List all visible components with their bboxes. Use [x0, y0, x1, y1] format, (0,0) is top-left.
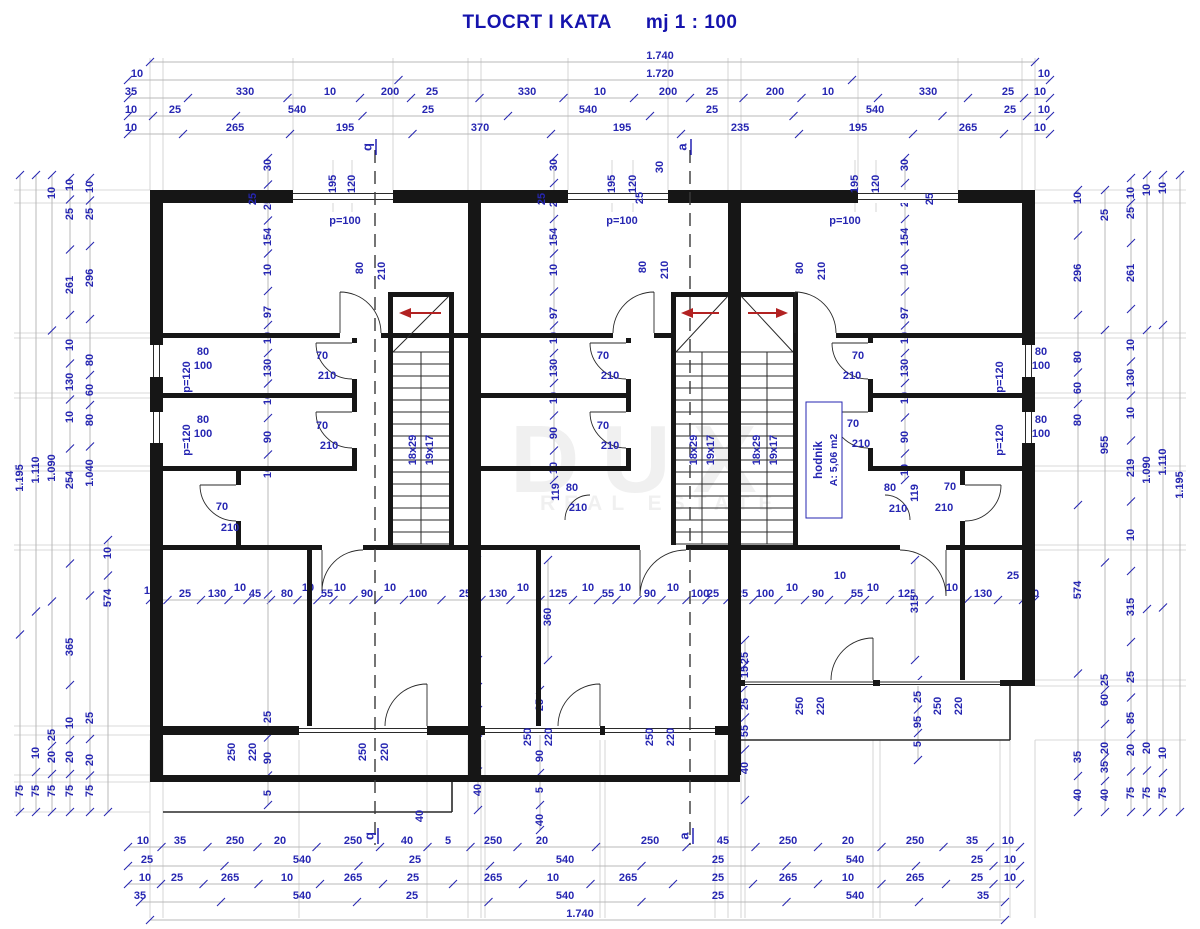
dim-label: 25	[407, 872, 419, 884]
dim-label: 25	[712, 890, 724, 902]
dim-label: 10	[1125, 407, 1137, 419]
dim-label: 25	[971, 854, 983, 866]
dim-label: 540	[288, 104, 306, 116]
dim-label: 55	[602, 588, 614, 600]
dim-label: 97	[262, 306, 274, 318]
v-dim-chain: 101.090252075	[46, 171, 58, 816]
dim-label: 10	[842, 872, 854, 884]
dim-label: 265	[221, 872, 239, 884]
room-name: hodnik	[813, 441, 825, 479]
dim-label: 10	[1157, 182, 1169, 194]
dim-label: 45	[249, 588, 261, 600]
dim-label: 60	[1072, 382, 1084, 394]
dim-label: 45	[717, 835, 729, 847]
dim-label: 25	[426, 86, 438, 98]
v-dim-chain: 101.0902075	[1141, 171, 1153, 816]
dim-label: 10	[46, 187, 58, 199]
h-dim-chain: 1.740	[146, 908, 1009, 924]
dim-label: 210	[935, 502, 953, 514]
dim-label: 250	[906, 835, 924, 847]
dim-label: 70	[597, 350, 609, 362]
dim-label: 90	[899, 431, 911, 443]
v-dim-chain: 10574	[102, 536, 114, 816]
h-dim-chain: 1025130104580105510901010025130101251055…	[144, 570, 1039, 604]
dim-label: 130	[64, 373, 76, 391]
dim-label: 25	[84, 208, 96, 220]
dim-label: 75	[1125, 787, 1137, 799]
h-dim-chain: 102526510265252651026525265102652510	[124, 872, 1024, 888]
dim-label: 95	[912, 716, 924, 728]
dim-label: 200	[381, 86, 399, 98]
dim-label: 20	[64, 751, 76, 763]
dim-label: 25	[971, 872, 983, 884]
dim-label: 210	[659, 261, 671, 279]
dim-label: 210	[221, 522, 239, 534]
dim-label: 250	[641, 835, 659, 847]
dim-label: 330	[236, 86, 254, 98]
dim-label: 20	[46, 751, 58, 763]
dim-label: 250	[932, 697, 944, 715]
dim-label: p=100	[829, 215, 861, 227]
dim-label: 10	[1004, 854, 1016, 866]
dim-label: a	[676, 832, 691, 840]
dim-label: 130	[262, 359, 274, 377]
dim-label: 100	[1032, 360, 1050, 372]
dim-label: 10	[867, 582, 879, 594]
dim-label: 70	[216, 501, 228, 513]
dim-label: 20	[842, 835, 854, 847]
dim-label: 195	[336, 122, 354, 134]
dim-label: 10	[1038, 68, 1050, 80]
dim-label: 10	[667, 582, 679, 594]
dim-label: 70	[316, 350, 328, 362]
v-dim-chain: 3025154109710130109010	[548, 154, 560, 484]
dim-label: 261	[1125, 264, 1137, 282]
dim-label: 19x17	[768, 435, 780, 466]
dim-label: 25	[924, 193, 936, 205]
dim-label: 261	[64, 276, 76, 294]
dim-label: 130	[548, 359, 560, 377]
dim-label: 40	[534, 814, 546, 826]
dim-label: 10	[281, 872, 293, 884]
dim-label: 10	[1034, 122, 1046, 134]
dim-label: 100	[1032, 428, 1050, 440]
dim-label: 100	[194, 360, 212, 372]
dim-label: 540	[846, 890, 864, 902]
dim-label: p=100	[606, 215, 638, 227]
dim-label: 315	[909, 595, 921, 613]
dim-label: 30	[548, 159, 560, 171]
dim-label: 130	[974, 588, 992, 600]
dim-label: 25	[46, 729, 58, 741]
dim-label: 210	[569, 502, 587, 514]
dim-label: 1.040	[84, 459, 96, 487]
dim-label: 210	[601, 440, 619, 452]
dim-label: 10	[1125, 187, 1137, 199]
dim-label: 100	[194, 428, 212, 440]
dim-label: 265	[484, 872, 502, 884]
dim-label: 40	[1099, 789, 1111, 801]
dim-label: 1.740	[646, 50, 674, 62]
dim-label: 75	[64, 785, 76, 797]
dim-label: 40	[401, 835, 413, 847]
dim-label: 195	[613, 122, 631, 134]
dim-label: 80	[1072, 351, 1084, 363]
dim-label: 210	[816, 262, 828, 280]
v-dim-chain: 3025154109710130109010	[899, 154, 911, 484]
dim-label: 80	[84, 354, 96, 366]
dim-label: 20	[84, 754, 96, 766]
dim-label: 130	[208, 588, 226, 600]
dim-label: 25	[179, 588, 191, 600]
dim-label: 1.720	[646, 68, 674, 80]
dim-label: 70	[852, 350, 864, 362]
dim-label: 55	[851, 588, 863, 600]
dim-label: 25	[141, 854, 153, 866]
dim-label: 10	[30, 747, 42, 759]
dim-label: 330	[518, 86, 536, 98]
dim-label: 18x29	[407, 435, 419, 466]
dim-label: 10	[1038, 104, 1050, 116]
dim-label: 250	[226, 743, 238, 761]
h-dim-chain: 1035250202504052502025045250202503510	[124, 835, 1024, 851]
dim-label: 1.110	[30, 457, 42, 484]
dim-label: 10	[324, 86, 336, 98]
dim-label: 25	[712, 854, 724, 866]
dim-label: 10	[64, 339, 76, 351]
dim-label: 25	[247, 193, 259, 205]
dim-label: 220	[379, 743, 391, 761]
dim-label: 220	[247, 743, 259, 761]
dim-label: 35	[174, 835, 186, 847]
h-dim-chain: 101.72010	[124, 68, 1054, 84]
dim-label: 25	[171, 872, 183, 884]
dim-label: 10	[234, 582, 246, 594]
dim-label: 75	[14, 785, 26, 797]
dim-label: 35	[977, 890, 989, 902]
dim-label: 220	[815, 697, 827, 715]
dim-label: 25	[712, 872, 724, 884]
dim-label: 10	[139, 872, 151, 884]
dim-label: 265	[959, 122, 977, 134]
dim-label: 574	[102, 588, 114, 607]
dim-label: 10	[786, 582, 798, 594]
dim-label: 219	[1125, 459, 1137, 477]
dim-label: 10	[1125, 529, 1137, 541]
dim-label: 90	[361, 588, 373, 600]
dim-label: 25	[536, 193, 548, 205]
dim-label: 20	[274, 835, 286, 847]
dim-label: 1.195	[14, 464, 26, 492]
dim-label: 200	[766, 86, 784, 98]
dim-label: 330	[919, 86, 937, 98]
dim-label: 80	[566, 482, 578, 494]
v-dim-chain: 1.195	[1174, 171, 1186, 816]
dim-label: 315	[1125, 598, 1137, 616]
dim-label: 210	[889, 503, 907, 515]
dim-label: 80	[354, 262, 366, 274]
h-dim-chain: 35540255402554035	[134, 890, 1009, 906]
dim-label: 540	[846, 854, 864, 866]
dim-label: 130	[1125, 369, 1137, 387]
dim-label: p=120	[181, 424, 193, 456]
dim-label: 80	[637, 261, 649, 273]
dim-label: 90	[812, 588, 824, 600]
dim-label: 25	[1007, 570, 1019, 582]
dim-label: 1.090	[1141, 456, 1153, 484]
dim-label: 250	[644, 728, 656, 746]
dim-label: 540	[556, 854, 574, 866]
dim-label: 70	[944, 481, 956, 493]
dim-label: 220	[953, 697, 965, 715]
dim-label: 35	[966, 835, 978, 847]
dim-label: 10	[334, 582, 346, 594]
dim-label: 10	[64, 179, 76, 191]
dim-label: 90	[262, 431, 274, 443]
dim-label: 210	[852, 438, 870, 450]
dim-label: 119	[909, 484, 921, 502]
dim-label: 195	[849, 175, 861, 193]
dim-label: 20	[1099, 742, 1111, 754]
floor-plan-drawing: DUX REAL ESTATE 1.740101.720103533010200…	[0, 0, 1200, 929]
dim-label: 120	[627, 175, 639, 193]
h-dim-chain: 3533010200253301020025200103302510	[124, 86, 1054, 102]
dim-label: 10	[547, 872, 559, 884]
dim-label: 1.195	[1174, 471, 1186, 499]
dim-label: 25	[1004, 104, 1016, 116]
dim-label: 90	[548, 427, 560, 439]
dim-label: 10	[1141, 184, 1153, 196]
dim-label: 10	[1157, 747, 1169, 759]
dim-label: 80	[197, 346, 209, 358]
dim-label: 210	[318, 370, 336, 382]
dim-label: 20	[1141, 742, 1153, 754]
dim-label: 125	[549, 588, 567, 600]
dim-label: 5	[262, 790, 274, 796]
v-dim-chain: 25955	[912, 676, 924, 764]
dim-label: 119	[550, 483, 562, 501]
dim-label: 254	[64, 470, 76, 489]
dim-label: 360	[542, 608, 554, 626]
dim-label: 97	[899, 307, 911, 319]
dim-label: 210	[601, 370, 619, 382]
v-dim-chain: 102968060805743540	[1072, 186, 1084, 816]
dim-label: 10	[1072, 192, 1084, 204]
dim-label: 10	[64, 717, 76, 729]
dim-label: 540	[293, 854, 311, 866]
dim-label: 10	[594, 86, 606, 98]
room-label-hodnik: hodnik A: 5,06 m2	[806, 402, 842, 518]
dim-label: 10	[517, 582, 529, 594]
dim-label: 10	[548, 264, 560, 276]
room-area: A: 5,06 m2	[828, 434, 840, 487]
dim-label: 540	[579, 104, 597, 116]
dim-label: 25	[169, 104, 181, 116]
v-dim-chain: 315	[909, 556, 921, 664]
dim-label: 5	[912, 741, 924, 747]
dim-label: 220	[543, 728, 555, 746]
dim-label: 10	[619, 582, 631, 594]
v-dim-chain: 302515410971013010901025905	[262, 154, 274, 809]
dim-label: 10	[946, 582, 958, 594]
h-dim-chain: 1026519537019523519526510	[124, 122, 1054, 138]
dim-label: 90	[262, 752, 274, 764]
dim-label: 250	[344, 835, 362, 847]
dim-label: 19x17	[705, 435, 717, 466]
dim-label: 195	[606, 175, 618, 193]
dim-label: 540	[556, 890, 574, 902]
v-dim-chain: 102526110130102191031525852075	[1125, 174, 1137, 816]
dim-label: 250	[522, 728, 534, 746]
dim-label: 365	[64, 638, 76, 656]
dim-label: 97	[548, 307, 560, 319]
dim-label: 540	[293, 890, 311, 902]
dim-label: 265	[906, 872, 924, 884]
dim-label: 296	[1072, 264, 1084, 282]
dim-label: 10	[582, 582, 594, 594]
dim-label: 120	[870, 175, 882, 193]
dim-label: 25	[1002, 86, 1014, 98]
dim-label: 574	[1072, 580, 1084, 599]
v-dim-chain: 10252611013010254365102075	[64, 174, 76, 816]
dim-label: 18x29	[751, 435, 763, 466]
dim-label: 55	[321, 588, 333, 600]
h-dim-chain: 102554025540255402510	[124, 104, 1054, 120]
h-dim-chain: 2554025540255402510	[124, 854, 1024, 870]
dim-label: 35	[125, 86, 137, 98]
dim-label: 70	[316, 420, 328, 432]
dim-label: 75	[30, 785, 42, 797]
dim-label: 35	[134, 890, 146, 902]
dim-label: 75	[1157, 787, 1169, 799]
dim-label: 10	[1034, 86, 1046, 98]
dim-label: 25	[1099, 674, 1111, 686]
dim-label: 80	[84, 414, 96, 426]
dim-label: 70	[847, 418, 859, 430]
dim-label: 1.090	[46, 454, 58, 482]
dim-label: 154	[548, 227, 560, 246]
dim-label: 25	[84, 712, 96, 724]
dim-label: p=120	[994, 424, 1006, 456]
dim-label: 154	[899, 227, 911, 246]
dim-label: 250	[794, 697, 806, 715]
dim-label: 120	[346, 175, 358, 193]
dim-label: 130	[899, 359, 911, 377]
dim-label: 250	[357, 743, 369, 761]
dim-label: 10	[102, 547, 114, 559]
dim-label: 25	[64, 208, 76, 220]
h-dim-chain: 1.740	[146, 50, 1039, 66]
dim-label: 90	[534, 750, 546, 762]
dim-label: 210	[843, 370, 861, 382]
v-dim-chain: 360	[542, 556, 554, 664]
dim-label: 1.110	[1157, 449, 1169, 476]
dim-label: 10	[899, 264, 911, 276]
dim-label: 370	[471, 122, 489, 134]
v-dim-chain: 1.1101075	[30, 171, 42, 816]
dim-label: 195	[849, 122, 867, 134]
dim-label: 80	[1072, 414, 1084, 426]
dim-label: 60	[1099, 694, 1111, 706]
dim-label: 210	[376, 262, 388, 280]
dim-label: 10	[1004, 872, 1016, 884]
dim-label: 265	[779, 872, 797, 884]
dim-label: 25	[409, 854, 421, 866]
dim-label: 250	[226, 835, 244, 847]
dim-label: 265	[344, 872, 362, 884]
dim-label: 220	[665, 728, 677, 746]
dim-label: 10	[137, 835, 149, 847]
dim-label: 35	[1072, 751, 1084, 763]
dim-label: 10	[1125, 339, 1137, 351]
dim-label: 75	[46, 785, 58, 797]
dim-label: 40	[472, 784, 484, 796]
dim-label: 10	[131, 68, 143, 80]
dim-label: a	[674, 143, 689, 151]
dim-label: 30	[262, 159, 274, 171]
dim-label: 955	[1099, 436, 1111, 454]
dim-label: 30	[654, 161, 666, 173]
dim-label: 10	[822, 86, 834, 98]
dim-label: 100	[409, 588, 427, 600]
dim-label: 40	[1072, 789, 1084, 801]
dim-label: 20	[536, 835, 548, 847]
dim-label: 10	[84, 181, 96, 193]
v-dim-chain: 259552560203540	[1099, 186, 1111, 816]
dim-label: 10	[834, 570, 846, 582]
dim-label: 265	[619, 872, 637, 884]
dim-label: 540	[866, 104, 884, 116]
dim-label: 10	[1002, 835, 1014, 847]
dim-label: 195	[327, 175, 339, 193]
dim-label: 35	[1099, 761, 1111, 773]
dim-label: 10	[64, 411, 76, 423]
dim-label: 25	[1125, 207, 1137, 219]
dim-label: 75	[1141, 787, 1153, 799]
dim-label: 85	[1125, 712, 1137, 724]
dim-label: 25	[262, 711, 274, 723]
dim-label: 10	[384, 582, 396, 594]
dim-label: 25	[406, 890, 418, 902]
dim-label: 25	[422, 104, 434, 116]
dim-label: 5	[534, 787, 546, 793]
v-dim-chain: 10252968060801.040252075	[84, 174, 96, 816]
dim-label: 296	[84, 269, 96, 287]
v-dim-chain: 101.1101075	[1157, 171, 1169, 816]
dim-label: 154	[262, 227, 274, 246]
dim-label: 25	[634, 192, 646, 204]
dim-label: 130	[489, 588, 507, 600]
dim-label: 25	[1099, 209, 1111, 221]
dim-label: 10	[125, 104, 137, 116]
dim-label: 25	[912, 691, 924, 703]
dim-label: 250	[484, 835, 502, 847]
dim-label: 265	[226, 122, 244, 134]
dim-label: p=120	[181, 361, 193, 393]
dim-label: 19x17	[424, 435, 436, 466]
dim-label: q	[361, 832, 376, 840]
dim-label: 18x29	[688, 435, 700, 466]
dim-label: 75	[84, 785, 96, 797]
dim-label: 25	[707, 588, 719, 600]
v-dim-chain: 1.19575	[14, 171, 26, 816]
dim-label: p=120	[994, 361, 1006, 393]
dim-label: 5	[445, 835, 451, 847]
dim-label: 30	[899, 159, 911, 171]
dim-label: 1.740	[566, 908, 594, 920]
dim-label: 25	[1125, 671, 1137, 683]
dim-label: 25	[706, 86, 718, 98]
